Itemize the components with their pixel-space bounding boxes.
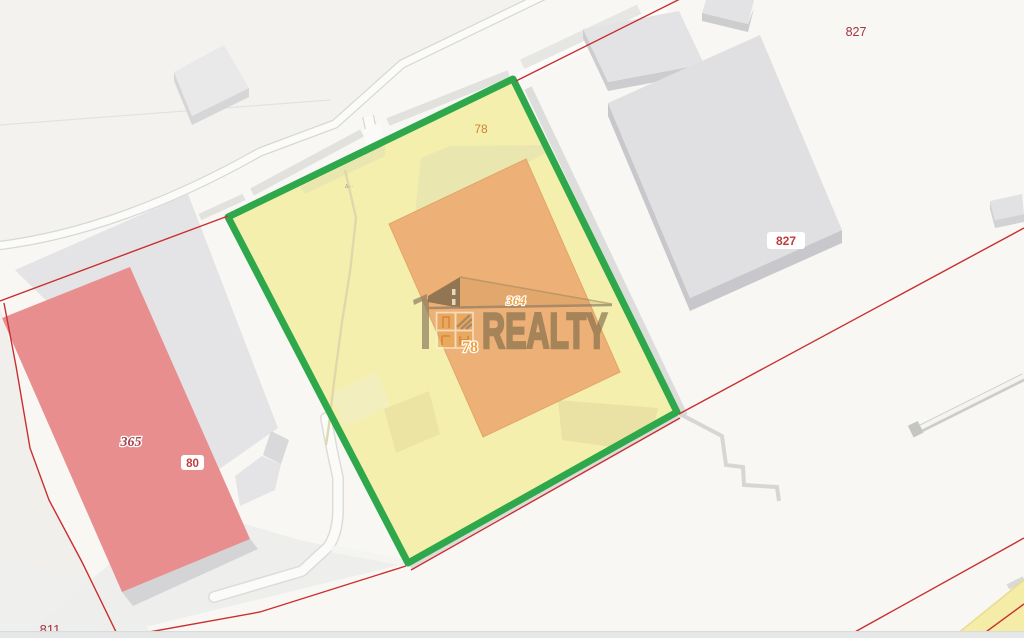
svg-text:80: 80 <box>186 458 199 470</box>
svg-text:REALTY: REALTY <box>482 304 607 359</box>
svg-text:365: 365 <box>120 435 142 450</box>
svg-text:364: 364 <box>505 293 526 308</box>
svg-text:78: 78 <box>474 122 488 136</box>
svg-text:78: 78 <box>462 339 478 356</box>
svg-text:Δ···: Δ··· <box>345 184 354 190</box>
svg-text:827: 827 <box>846 25 867 39</box>
svg-text:827: 827 <box>776 234 796 248</box>
